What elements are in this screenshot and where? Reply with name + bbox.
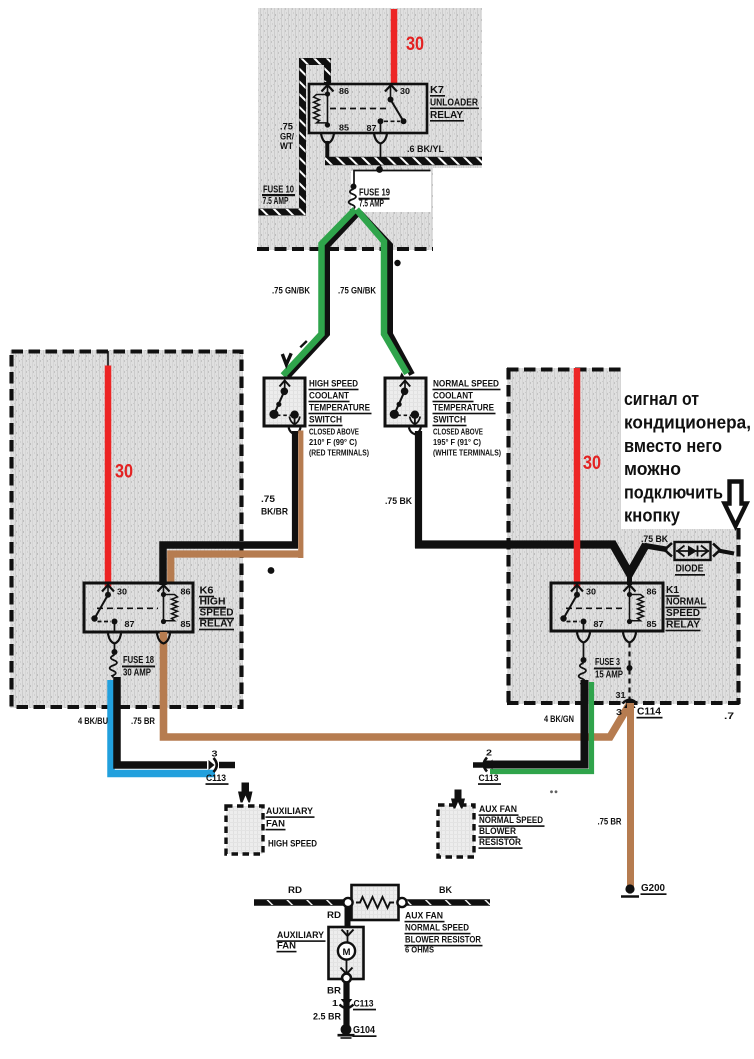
svg-text:7.5 AMP: 7.5 AMP (263, 196, 289, 207)
svg-text:FAN: FAN (277, 941, 296, 952)
svg-text:HIGH: HIGH (200, 597, 226, 608)
svg-text:BLOWER: BLOWER (479, 826, 516, 837)
svg-text:.75 BK: .75 BK (641, 534, 668, 545)
svg-text:.75 BR: .75 BR (598, 817, 622, 828)
svg-text:.6 BK/YL: .6 BK/YL (407, 144, 444, 155)
svg-text:C113: C113 (479, 773, 499, 784)
svg-text:.7: .7 (724, 711, 734, 722)
svg-text:AUXILIARY: AUXILIARY (277, 930, 325, 941)
svg-text:RELAY: RELAY (666, 620, 700, 631)
svg-text:87: 87 (367, 123, 377, 133)
svg-text:30: 30 (117, 587, 127, 597)
svg-text:.75 GN/BK: .75 GN/BK (338, 286, 376, 297)
svg-text:30: 30 (583, 453, 601, 474)
svg-text:вместо него: вместо него (624, 435, 722, 456)
svg-text:.75: .75 (261, 494, 276, 505)
svg-text:87: 87 (125, 619, 135, 629)
svg-text:кнопку: кнопку (624, 505, 681, 526)
svg-text:2.5 BR: 2.5 BR (313, 1012, 341, 1023)
svg-text:NORMAL SPEED: NORMAL SPEED (405, 923, 469, 934)
svg-text:210° F (99° C): 210° F (99° C) (309, 438, 357, 447)
svg-text:C113: C113 (354, 999, 374, 1010)
svg-text:85: 85 (181, 619, 191, 629)
svg-text:86: 86 (339, 86, 349, 96)
svg-text:WT: WT (280, 141, 293, 151)
svg-text:M: M (343, 947, 351, 957)
svg-text:.75 BK: .75 BK (385, 496, 412, 507)
svg-text:можно: можно (624, 458, 681, 479)
svg-text:K6: K6 (200, 586, 214, 597)
svg-text:CLOSED ABOVE: CLOSED ABOVE (309, 428, 360, 437)
svg-text:DIODE: DIODE (676, 564, 704, 575)
svg-text:FUSE 19: FUSE 19 (359, 188, 390, 199)
svg-text:G200: G200 (641, 883, 665, 894)
svg-text:SPEED: SPEED (666, 608, 700, 619)
svg-text:RELAY: RELAY (430, 109, 463, 121)
svg-text:C113: C113 (206, 773, 226, 784)
svg-text:K7: K7 (430, 84, 444, 96)
svg-text:FUSE 3: FUSE 3 (595, 657, 620, 668)
svg-text:FAN: FAN (266, 819, 285, 830)
svg-text:CLOSED ABOVE: CLOSED ABOVE (433, 428, 484, 437)
svg-text:G104: G104 (353, 1025, 375, 1036)
svg-text:кондиционера,: кондиционера, (624, 412, 751, 433)
svg-text:сигнал от: сигнал от (624, 388, 699, 409)
svg-text:30 AMP: 30 AMP (123, 668, 151, 679)
svg-text:RELAY: RELAY (200, 619, 234, 630)
svg-text:30: 30 (406, 34, 424, 55)
svg-text:.75 GN/BK: .75 GN/BK (272, 286, 310, 297)
svg-text:AUXILIARY: AUXILIARY (266, 806, 314, 817)
svg-text:.75 BR: .75 BR (131, 716, 155, 727)
svg-text:15 AMP: 15 AMP (595, 670, 623, 681)
svg-text:1: 1 (332, 998, 338, 1008)
svg-text:K1: K1 (666, 585, 679, 596)
svg-text:30: 30 (400, 86, 410, 96)
svg-text:NORMAL SPEED: NORMAL SPEED (433, 379, 499, 390)
svg-text:4 BK/BU: 4 BK/BU (78, 716, 108, 727)
svg-text:SWITCH: SWITCH (433, 415, 466, 426)
svg-text:RD: RD (288, 885, 302, 896)
svg-text:TEMPERATURE: TEMPERATURE (309, 403, 370, 414)
svg-text:COOLANT: COOLANT (309, 391, 349, 402)
svg-text:30: 30 (586, 587, 596, 597)
svg-text:BLOWER RESISTOR: BLOWER RESISTOR (405, 935, 481, 946)
svg-text:RD: RD (327, 910, 341, 921)
svg-text:195° F (91° C): 195° F (91° C) (433, 438, 481, 447)
svg-text:FUSE 10: FUSE 10 (263, 185, 294, 196)
svg-text:GR/: GR/ (280, 132, 294, 142)
svg-text:7.5 AMP: 7.5 AMP (359, 199, 384, 210)
svg-text:RESISTOR: RESISTOR (479, 837, 521, 848)
svg-text:.75: .75 (280, 122, 293, 132)
svg-text:BR: BR (327, 986, 341, 997)
svg-text:6 OHMS: 6 OHMS (405, 946, 435, 955)
svg-text:SWITCH: SWITCH (309, 415, 342, 426)
svg-text:4 BK/GN: 4 BK/GN (544, 714, 574, 725)
svg-text:BK: BK (439, 885, 452, 896)
svg-text:30: 30 (115, 462, 133, 483)
svg-text:31: 31 (616, 690, 626, 700)
svg-text:HIGH SPEED: HIGH SPEED (309, 379, 358, 390)
svg-text:85: 85 (339, 123, 349, 133)
svg-text:NORMAL SPEED: NORMAL SPEED (479, 815, 543, 826)
svg-text:UNLOADER: UNLOADER (430, 97, 478, 109)
svg-text:2: 2 (486, 748, 492, 758)
svg-text:(WHITE TERMINALS): (WHITE TERMINALS) (433, 449, 501, 458)
svg-text:87: 87 (594, 619, 604, 629)
svg-text:86: 86 (181, 587, 191, 597)
svg-text:BK/BR: BK/BR (261, 507, 288, 518)
svg-text:AUX FAN: AUX FAN (405, 911, 443, 922)
svg-text:AUX FAN: AUX FAN (479, 804, 517, 815)
svg-text:86: 86 (647, 587, 657, 597)
svg-text:C114: C114 (637, 707, 661, 718)
svg-text:NORMAL: NORMAL (666, 597, 706, 608)
svg-text:TEMPERATURE: TEMPERATURE (433, 403, 494, 414)
svg-text:HIGH SPEED: HIGH SPEED (268, 839, 317, 850)
svg-text:3: 3 (616, 707, 622, 717)
svg-text:FUSE 18: FUSE 18 (123, 655, 154, 666)
svg-text:(RED TERMINALS): (RED TERMINALS) (309, 449, 369, 458)
svg-text:подключить: подключить (624, 482, 723, 503)
svg-text:COOLANT: COOLANT (433, 391, 473, 402)
svg-text:SPEED: SPEED (200, 608, 234, 619)
svg-text:3: 3 (212, 749, 218, 759)
svg-text:85: 85 (647, 619, 657, 629)
